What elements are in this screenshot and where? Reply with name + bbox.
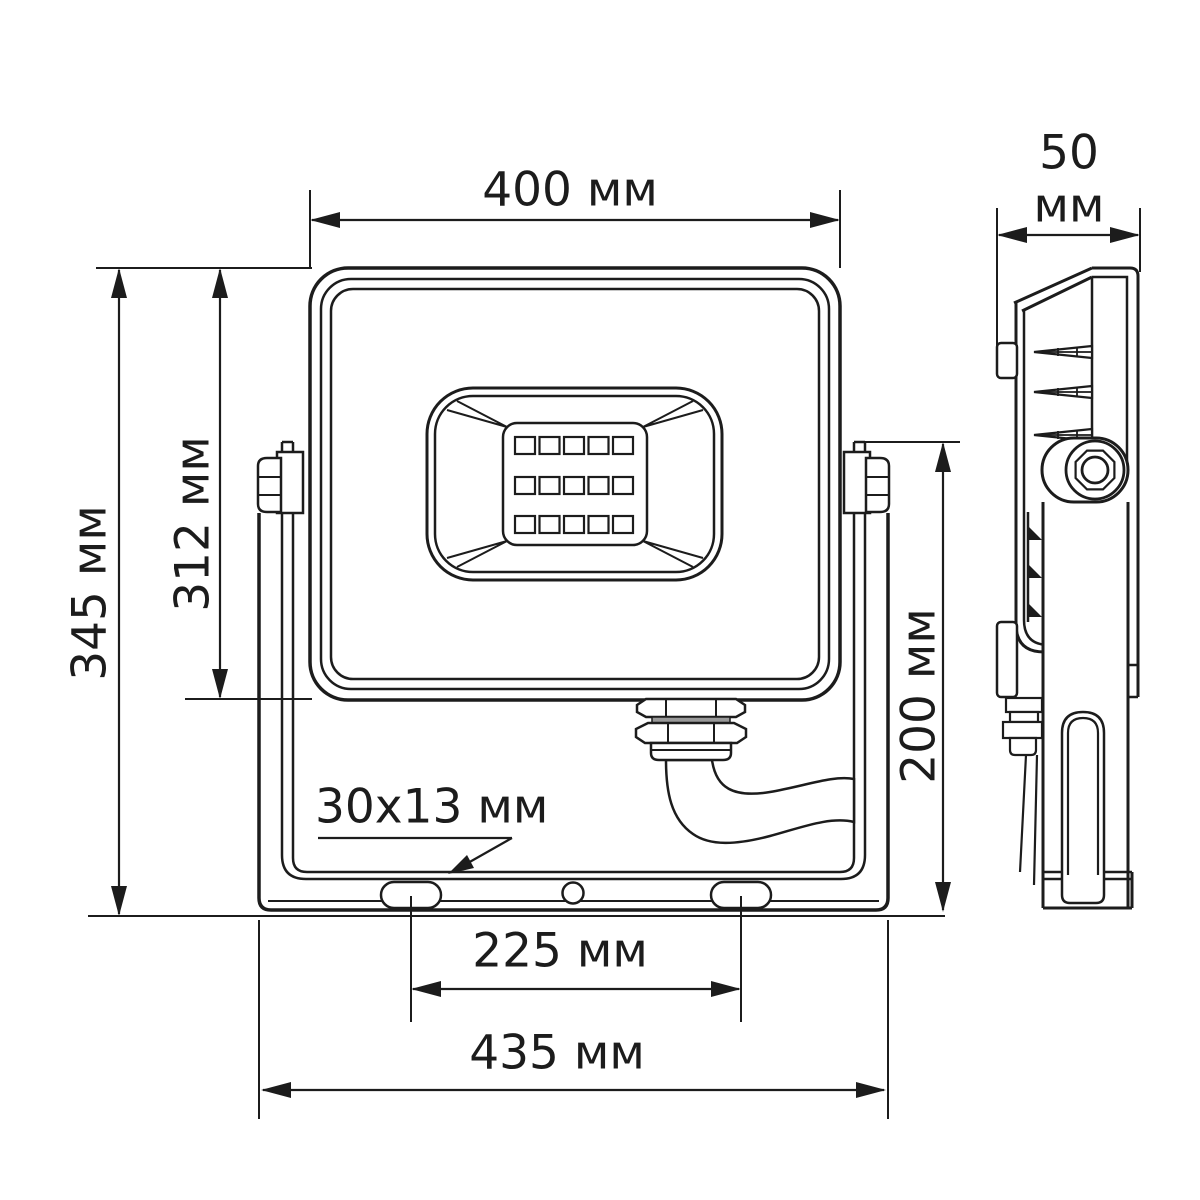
led-chip <box>564 516 584 533</box>
pivot-knuckle <box>1042 438 1128 502</box>
dimension-annotations: 400 мм 50 мм 345 мм 312 мм 200 мм 30x13 … <box>62 125 1140 1119</box>
lower-fin-wedges <box>1028 526 1042 617</box>
dim-label-depth-unit: мм <box>1034 178 1105 233</box>
led-chip <box>515 437 535 454</box>
cable-gland <box>636 699 746 760</box>
dim-label-bracket-width: 435 мм <box>469 1025 645 1080</box>
led-chip <box>540 437 560 454</box>
mounting-ear-top <box>997 343 1017 378</box>
bracket-arm-side <box>1043 470 1132 908</box>
dim-label-slot-size: 30x13 мм <box>315 779 548 834</box>
heatsink-fins <box>1034 346 1092 441</box>
led-window <box>427 388 722 580</box>
led-chip-grid <box>515 437 633 533</box>
center-hole <box>563 883 584 904</box>
led-chip <box>515 516 535 533</box>
cable-gland-side <box>1003 698 1042 885</box>
led-chip <box>613 437 633 454</box>
led-chip <box>589 516 609 533</box>
dim-label-hole-spacing: 225 мм <box>472 923 648 978</box>
led-chip <box>564 477 584 494</box>
led-chip <box>540 516 560 533</box>
led-chip <box>515 477 535 494</box>
power-cable <box>666 760 854 843</box>
fin-wedge <box>1028 526 1042 540</box>
led-chip <box>613 516 633 533</box>
mounting-bracket <box>259 442 888 910</box>
mounting-ear-bottom <box>997 622 1017 697</box>
dim-label-height-body: 312 мм <box>165 436 220 612</box>
dim-label-depth-value: 50 <box>1039 125 1099 180</box>
pivot-bolt-right <box>844 452 889 513</box>
dim-label-width: 400 мм <box>482 162 658 217</box>
technical-drawing-page: 400 мм 50 мм 345 мм 312 мм 200 мм 30x13 … <box>0 0 1200 1200</box>
floodlight-dimension-drawing: 400 мм 50 мм 345 мм 312 мм 200 мм 30x13 … <box>0 0 1200 1200</box>
led-chip <box>540 477 560 494</box>
pivot-bolt-left <box>258 452 303 513</box>
led-chip <box>589 437 609 454</box>
led-chip <box>589 477 609 494</box>
fin-wedge <box>1028 603 1042 617</box>
led-chip <box>613 477 633 494</box>
side-view <box>997 268 1138 908</box>
roof-edge <box>1014 268 1092 311</box>
extension-lines <box>88 190 1140 1119</box>
dim-label-height-total: 345 мм <box>62 505 117 681</box>
dim-label-height-bracket: 200 мм <box>891 608 946 784</box>
fin-wedge <box>1028 564 1042 578</box>
led-chip <box>564 437 584 454</box>
